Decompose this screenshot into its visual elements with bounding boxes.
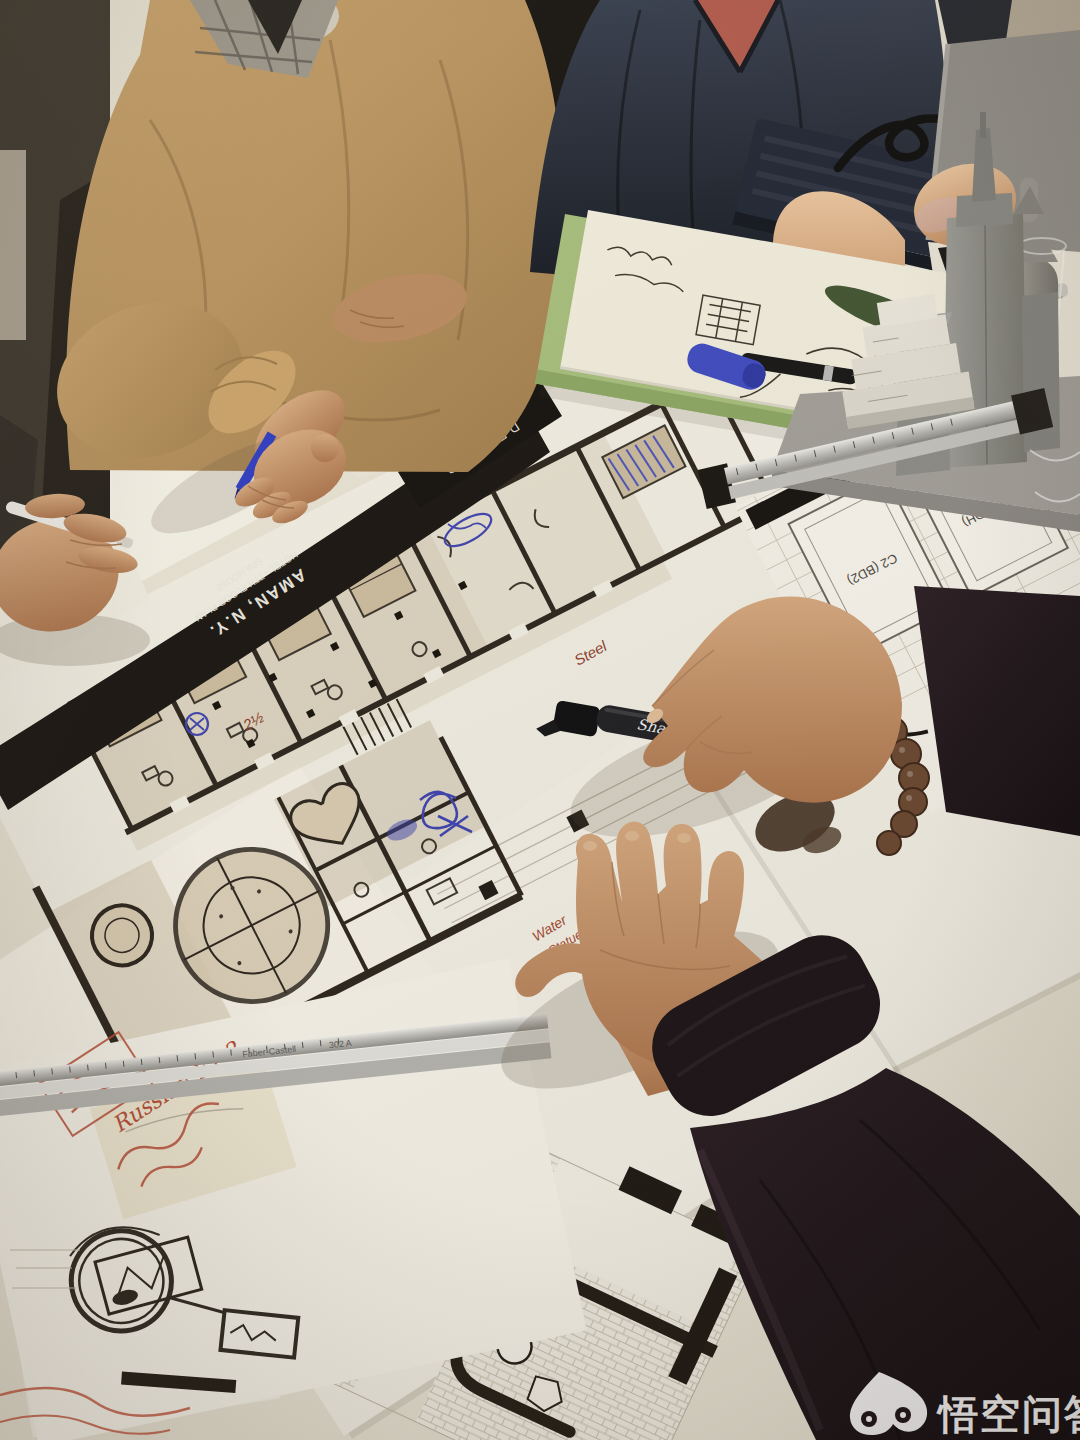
watermark-text: 悟空问答	[936, 1391, 1080, 1437]
photo-scene: C2 (BD2) C1 (BDH)	[0, 0, 1080, 1440]
